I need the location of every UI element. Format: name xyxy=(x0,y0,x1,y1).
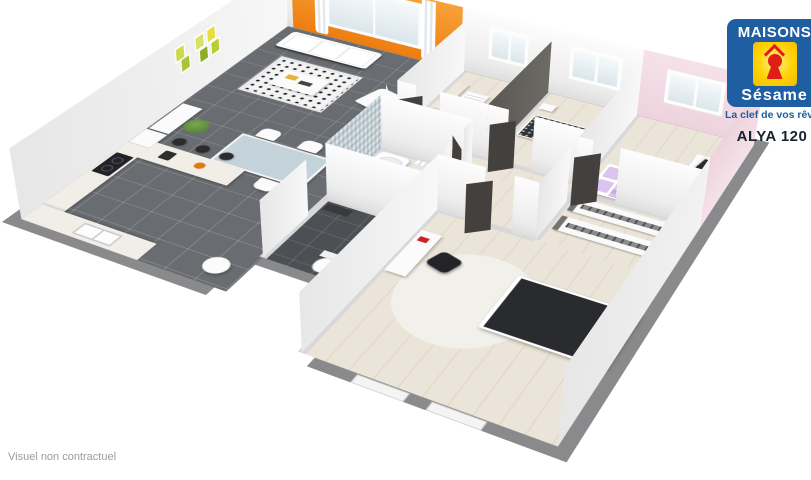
nursery-window xyxy=(488,27,529,69)
kitchen-counter-south xyxy=(21,204,156,260)
logo-text-maisons: MAISONS xyxy=(738,24,811,41)
open-door-dark xyxy=(570,153,601,206)
window-sill xyxy=(425,401,488,430)
logo-text-sesame: Sésame xyxy=(741,87,808,105)
office-chair xyxy=(424,251,464,274)
window-sill xyxy=(350,374,410,402)
model-name: ALYA 120 xyxy=(727,128,811,145)
marketing-visual: MAISONS Sésame La clef de vos rêves ALYA… xyxy=(0,0,811,480)
disclaimer-text: Visuel non contractuel xyxy=(8,451,116,463)
wc-shelf xyxy=(322,203,353,217)
floorplan-3d-scene xyxy=(0,0,811,480)
brand-tagline: La clef de vos rêves xyxy=(725,109,811,121)
white-pouf xyxy=(197,254,236,277)
maisons-sesame-logo: MAISONS Sésame xyxy=(727,19,811,107)
white-rug xyxy=(363,240,564,367)
kitchen-sink xyxy=(71,223,122,247)
open-door-dark xyxy=(464,181,493,234)
floorplan-3d xyxy=(0,26,754,446)
bedroom2-window xyxy=(569,46,624,91)
keyhole-icon xyxy=(753,42,797,86)
